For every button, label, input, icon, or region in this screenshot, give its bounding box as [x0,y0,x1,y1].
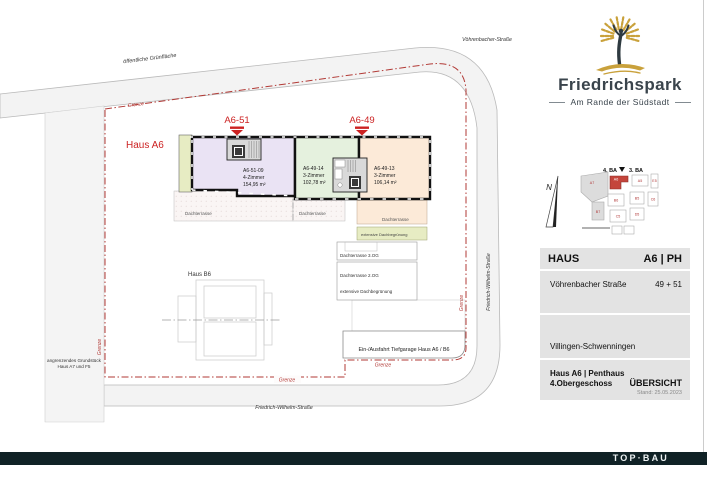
minimap-ba3-label: 3. BA [629,168,643,174]
driveway-label: Ein-/Ausfahrt Tiefgarage Haus A6 / B6 [358,347,449,353]
titleblock-uebersicht-label: ÜBERSICHT [629,378,682,388]
haus-b6-label: Haus B6 [188,272,212,278]
grenze-label-top: Grenze [127,101,144,109]
driveway-outer [352,300,465,331]
minimap-label-e5: E5 [652,179,656,183]
titleblock-haus-value: A6 | PH [643,253,682,265]
brand-logo: Friedrichspark Am Rande der Südstadt [537,12,703,107]
driveway-box [343,331,465,358]
marker-a6-51-arrow-icon [231,130,243,136]
titleblock-street-label: Vöhrenbacher Straße [550,280,627,289]
title-block-row-sheet: Haus A6 | Penthaus 4.Obergeschoss ÜBERSI… [540,360,690,400]
fw-street-bottom-label: Friedrich-Wilhelm-Straße [255,405,313,411]
unit3-id: A6-49-13 [374,166,395,172]
brand-tagline-text: Am Rande der Südstadt [570,97,669,107]
minimap-label-b7: B7 [596,210,600,214]
haus-b6-outline [162,280,282,360]
minimap-bldg-a6-highlight [610,176,628,189]
marker-a6-51-label: A6-51 [224,115,249,126]
terrace-mid-label: Dachterrasse [299,211,326,216]
minimap-arrow-icon [619,167,625,172]
adjacent-property-label-2: Haus A7 und F5 [58,364,91,369]
brand-name: Friedrichspark [537,76,703,94]
title-block-row-street: Vöhrenbacher Straße 49 + 51 [540,271,690,313]
terrace-2og-label: Dachterrasse 2.OG [340,273,379,278]
plan-sheet: angrenzendes Grundstück Haus A7 und F5 ö… [0,0,707,500]
marker-a6-49-arrow-icon [356,130,368,136]
terrace-3og-label: Dachterrasse 3.OG [340,253,379,258]
minimap-label-a5: A5 [638,179,642,183]
title-block-row-haus: HAUS A6 | PH [540,248,690,269]
haus-a6-label: Haus A6 [126,140,164,151]
minimap-label-c6: C6 [651,198,656,202]
grenze-label-bottom: Grenze [279,378,296,384]
titleblock-street-number: 49 + 51 [655,280,682,289]
roof-green-2og-label: extensive Dachbegrünung [340,289,393,294]
titleblock-city-label: Villingen-Schwenningen [550,342,635,351]
minimap: 4. BA 3. BA A7 A6 A5 [581,167,658,234]
unit2-id: A6-49-14 [303,166,324,172]
unit1-area: 154,95 m² [243,182,266,188]
unit2-rooms: 3-Zimmer [303,173,325,179]
grenze-label-right: Grenze [459,295,465,312]
unit1-id: A6-51-09 [243,168,264,174]
minimap-label-b6: B6 [614,199,618,203]
minimap-label-c5: C5 [616,215,621,219]
tagline-rule-left [549,102,565,103]
minimap-bldg-small-1 [612,226,622,234]
unit2-area: 102,78 m² [303,180,326,186]
voehrenbacher-street-label: Vöhrenbacher-Straße [462,37,512,43]
grenze-label-driveway: Grenze [375,363,392,369]
minimap-bldg-a7 [581,172,608,202]
stair-core-right [333,158,367,192]
unit3-rooms: 3-Zimmer [374,173,396,179]
minimap-label-d5: D5 [635,213,640,217]
title-block-row-city: Villingen-Schwenningen [540,315,690,358]
marker-a6-49-bar [355,127,369,129]
topbau-logo: TOP·BAU [613,452,669,465]
tagline-rule-right [675,102,691,103]
unit3-area: 106,14 m² [374,180,397,186]
brand-tagline: Am Rande der Südstadt [537,97,703,107]
entrance-markers: A6-51 A6-49 [224,115,374,136]
minimap-label-a7: A7 [590,181,594,185]
tree-logo-icon [589,12,651,76]
minimap-label-a6: A6 [614,178,618,182]
elevator-right [349,176,361,189]
minimap-bldg-small-2 [624,226,634,234]
title-block: HAUS A6 | PH Vöhrenbacher Straße 49 + 51… [540,248,690,400]
north-arrow-icon: N [546,176,558,227]
north-label: N [546,183,552,192]
titleblock-haus-label: HAUS [548,253,579,265]
sheet-edge-line [703,0,704,452]
titleblock-sheet-line2: 4.Obergeschoss [550,379,612,388]
stair-core-left [227,139,261,160]
elevator-left [232,145,245,158]
adjacent-property-label-1: angrenzendes Grundstück [47,358,102,363]
marker-a6-51-bar [230,127,244,129]
roof-green-right-label: extensive Dachbegrünung [361,232,407,237]
grenze-label-left: Grenze [97,339,103,356]
minimap-label-b5: B5 [635,197,639,201]
terrace-left-label: Dachterrasse [185,211,212,216]
roof-green-left [179,135,192,192]
terrace-right-label: Dachterrasse [382,217,409,222]
marker-a6-49-label: A6-49 [349,115,374,126]
unit1-rooms: 4-Zimmer [243,175,265,181]
titleblock-sheet-line1: Haus A6 | Penthaus [550,369,682,378]
terrace-2og-box [337,262,417,300]
adjacent-property [45,106,104,422]
footer-bar: TOP·BAU [0,452,707,465]
titleblock-stand-date: Stand: 25.05.2023 [637,390,682,396]
green-area-label: öffentliche Grünfläche [123,53,177,65]
fw-street-right-label: Friedrich-Wilhelm-Straße [486,253,492,311]
